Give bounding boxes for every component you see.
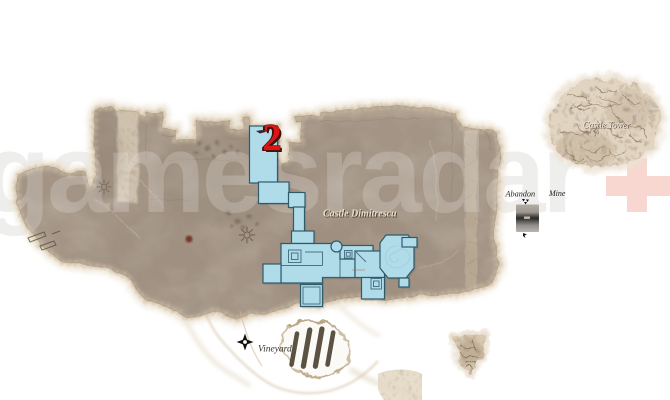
svg-text:Abandon: Abandon <box>505 190 536 199</box>
svg-text:Castle Tower: Castle Tower <box>583 120 631 130</box>
svg-text:Castle Dimitrescu: Castle Dimitrescu <box>323 208 397 219</box>
svg-text:Mine: Mine <box>548 189 566 198</box>
svg-text:2: 2 <box>263 117 282 159</box>
svg-text:Vineyard: Vineyard <box>258 345 292 355</box>
